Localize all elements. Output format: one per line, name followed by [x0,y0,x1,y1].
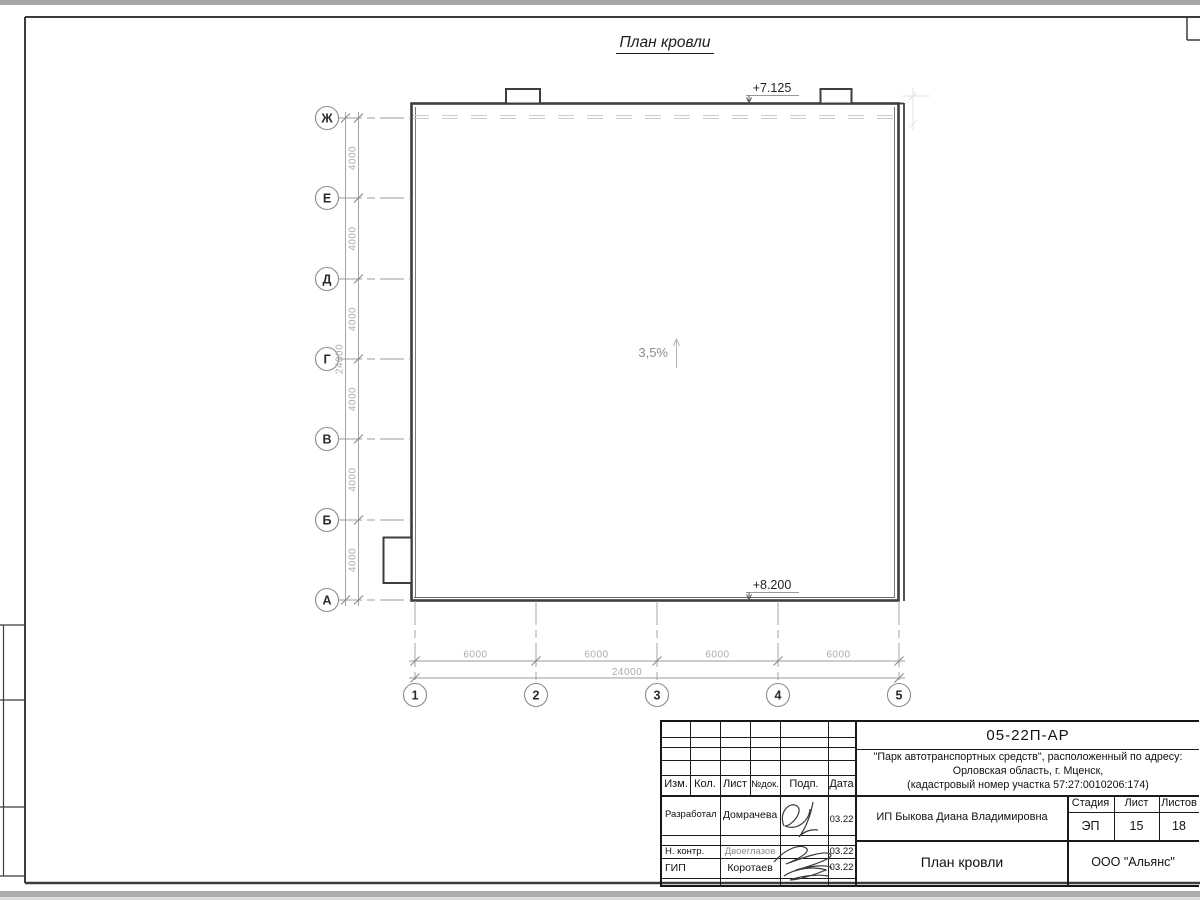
row-axes: Ж Е Д Г В Б А [316,107,412,612]
drawing-title: План кровли [857,840,1067,885]
signature-domracheva [774,796,830,840]
col-header-podp: Подп. [780,775,828,795]
col-axis-label: 4 [775,689,782,703]
row-axis-label: В [322,433,331,447]
col-dim-label: 6000 [705,650,729,661]
stage-header: Стадия [1067,795,1114,812]
col-axis-label: 2 [533,689,540,703]
row-axis-label: А [322,594,331,608]
row-dim-label: 4000 [348,146,359,170]
col-axis-label: 3 [654,689,661,703]
col-axis-label: 1 [412,689,419,703]
client-name: ИП Быкова Диана Владимировна [857,795,1067,840]
col-header-list: Лист [720,775,750,795]
row-dim-label: 4000 [348,548,359,572]
col-header-data: Дата [828,775,855,795]
col-dim-label: 6000 [584,650,608,661]
sheets-total: 18 [1159,812,1199,840]
elevation-mark-top: +7.125 [746,81,799,103]
col-total-dim-label: 24000 [612,667,642,678]
corner-marker [903,88,930,130]
roof-hatch [506,89,852,104]
col-dim-label: 6000 [463,650,487,661]
col-axis-label: 5 [896,689,903,703]
slope-label: 3,5% [638,345,668,360]
row-axis-label: Е [323,192,331,206]
sheet-title: План кровли [585,34,745,52]
signer-date: 03.22 [828,810,855,830]
row-dim-label: 4000 [348,307,359,331]
signer-name: Домрачева [720,795,780,835]
row-total-dim-label: 24000 [335,344,346,374]
col-header-ndok: №док. [750,775,780,795]
elevation-top-label: +7.125 [753,81,792,95]
project-address-line1: "Парк автотранспортных средств", располо… [874,751,1183,765]
left-annex [384,538,412,584]
row-dim-label: 4000 [348,467,359,491]
signer-date: 03.22 [828,858,855,878]
row-axis-label: Д [323,273,332,287]
row-dim-label: 4000 [348,226,359,250]
row-axis-label: Ж [320,112,333,126]
signer-date: 03.22 [828,845,855,858]
doc-number: 05-22П-АР [857,722,1199,749]
signer-role: Н. контр. [665,845,720,858]
row-axis-label: Г [323,353,330,367]
sheet-header: Лист [1114,795,1159,812]
signer-role: Разработал [665,795,720,835]
elevation-bottom-label: +8.200 [753,578,792,592]
drawing-sheet: Ж Е Д Г В Б А 4000 4000 [0,0,1200,900]
company-name: ООО "Альянс" [1067,840,1199,885]
sheet-title-text: План кровли [616,34,715,54]
col-header-kol: Кол. [690,775,720,795]
project-address-line2: Орловская область, г. Мценск, [953,765,1103,779]
col-dim-label: 6000 [826,650,850,661]
col-header-izm: Изм. [662,775,690,795]
stage-value: ЭП [1067,812,1114,840]
row-dim-label: 4000 [348,387,359,411]
signer-role: ГИП [665,858,720,878]
signer-name: Двоеглазов [720,845,780,858]
signer-name: Коротаев [720,858,780,878]
sheet-number: 15 [1114,812,1159,840]
sheets-header: Листов [1159,795,1199,812]
side-stamp [0,625,25,876]
project-description: "Парк автотранспортных средств", располо… [857,749,1199,795]
title-block: Изм. Кол. Лист №док. Подп. Дата Разработ… [660,720,1199,887]
row-axis-label: Б [323,514,332,528]
project-address-line3: (кадастровый номер участка 57:27:0010206… [907,779,1149,793]
